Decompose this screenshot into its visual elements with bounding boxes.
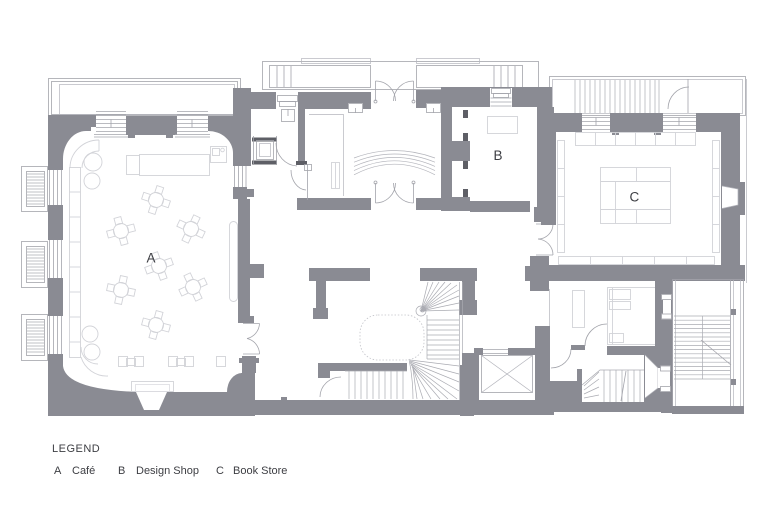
svg-text:C: C [630,190,640,205]
svg-text:Design Shop: Design Shop [136,465,199,477]
svg-text:Book Store: Book Store [233,465,287,477]
svg-text:A: A [54,465,62,477]
svg-text:C: C [216,465,224,477]
svg-text:B: B [494,148,503,163]
svg-text:Café: Café [72,465,95,477]
svg-text:LEGEND: LEGEND [52,443,100,455]
svg-text:A: A [147,251,156,266]
svg-text:B: B [118,465,125,477]
